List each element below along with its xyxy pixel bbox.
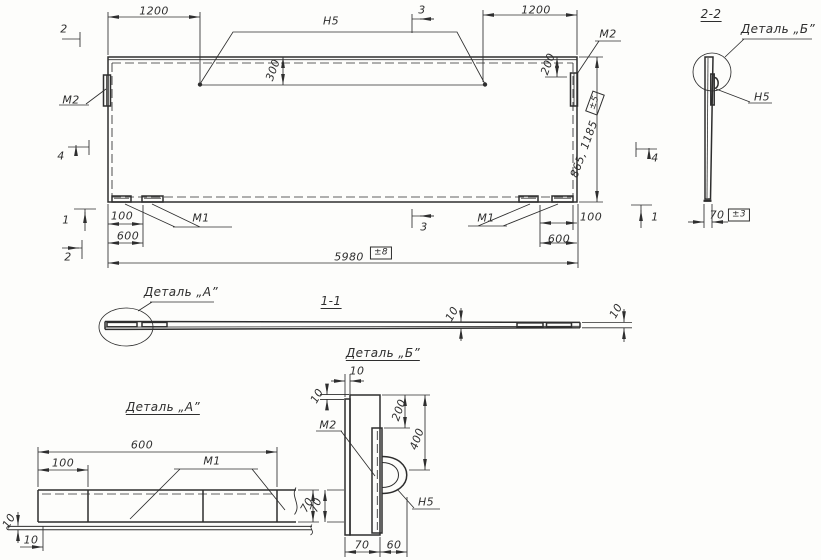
tolerance-overall: ±8 — [370, 247, 392, 260]
section-mark-4-left: 4 — [57, 151, 64, 162]
weld-point-right — [483, 82, 487, 86]
section-mark-4-right: 4 — [651, 153, 658, 164]
dim-top-right-1200: 1200 — [521, 5, 551, 16]
dim-hinge-offset-left: 100 — [111, 211, 133, 222]
dim-hinge-span-right: 600 — [548, 234, 570, 245]
section-mark-3-bottom: 3 — [420, 222, 427, 233]
panel-hidden-lines — [112, 63, 573, 197]
section-1-1-title: 1-1 — [321, 295, 342, 309]
section-1-1-bar — [105, 322, 580, 330]
mark-m2-left: М2 — [62, 95, 79, 106]
section-mark-2-top: 2 — [60, 24, 67, 35]
detail-a-shape — [7, 488, 313, 536]
section-mark-1-right: 1 — [651, 212, 658, 223]
mark-m2-detail-b: М2 — [319, 420, 336, 431]
dim-detail-b-width-70: 70 — [355, 540, 370, 551]
extension-and-leader-lines — [38, 10, 812, 557]
section-mark-1-left: 1 — [62, 215, 69, 226]
section-mark-2-bottom: 2 — [64, 252, 71, 263]
drawing-linework — [0, 0, 821, 560]
dim-top-left-1200: 1200 — [139, 6, 169, 17]
dim-hinge-span-left: 600 — [117, 231, 139, 242]
mark-m1-right: М1 — [477, 213, 494, 224]
dim-detail-a-end-10: 10 — [24, 535, 39, 546]
dim-detail-a-100: 100 — [52, 458, 74, 469]
section-2-2-title: 2-2 — [701, 8, 722, 22]
dim-hinge-offset-right: 100 — [580, 212, 602, 223]
detail-b-title: Деталь „Б” — [346, 347, 420, 361]
dim-detail-b-loop-60: 60 — [387, 540, 402, 551]
detail-a-callout: Деталь „А” — [144, 286, 218, 298]
mark-m1-left: М1 — [192, 213, 209, 224]
dim-detail-b-sheet-10: 10 — [350, 366, 365, 377]
mark-n5-detail-b: Н5 — [418, 497, 434, 508]
mark-n5-top: Н5 — [323, 16, 339, 27]
detail-a-title: Деталь „А” — [126, 401, 200, 415]
section-mark-3-top: 3 — [418, 5, 425, 16]
mark-m2-right: М2 — [599, 29, 616, 40]
drawing-sheet: 1200 1200 Н5 2 3 М2 300 200 М2 ±5 865, 1… — [0, 0, 821, 560]
mark-m1-detail-a: М1 — [203, 456, 220, 467]
dim-overall-length: 5980 — [334, 252, 364, 263]
section-2-2-bar — [704, 57, 719, 201]
panel-outline — [104, 57, 578, 202]
dim-section-width-70: 70 — [710, 210, 725, 221]
mark-n5-section-2-2: Н5 — [754, 92, 770, 103]
dim-detail-a-600: 600 — [131, 440, 153, 451]
dimension-lines — [18, 15, 728, 552]
tolerance-section-width: ±3 — [728, 209, 750, 222]
weld-point-left — [198, 82, 202, 86]
detail-b-callout: Деталь „Б” — [741, 23, 815, 35]
